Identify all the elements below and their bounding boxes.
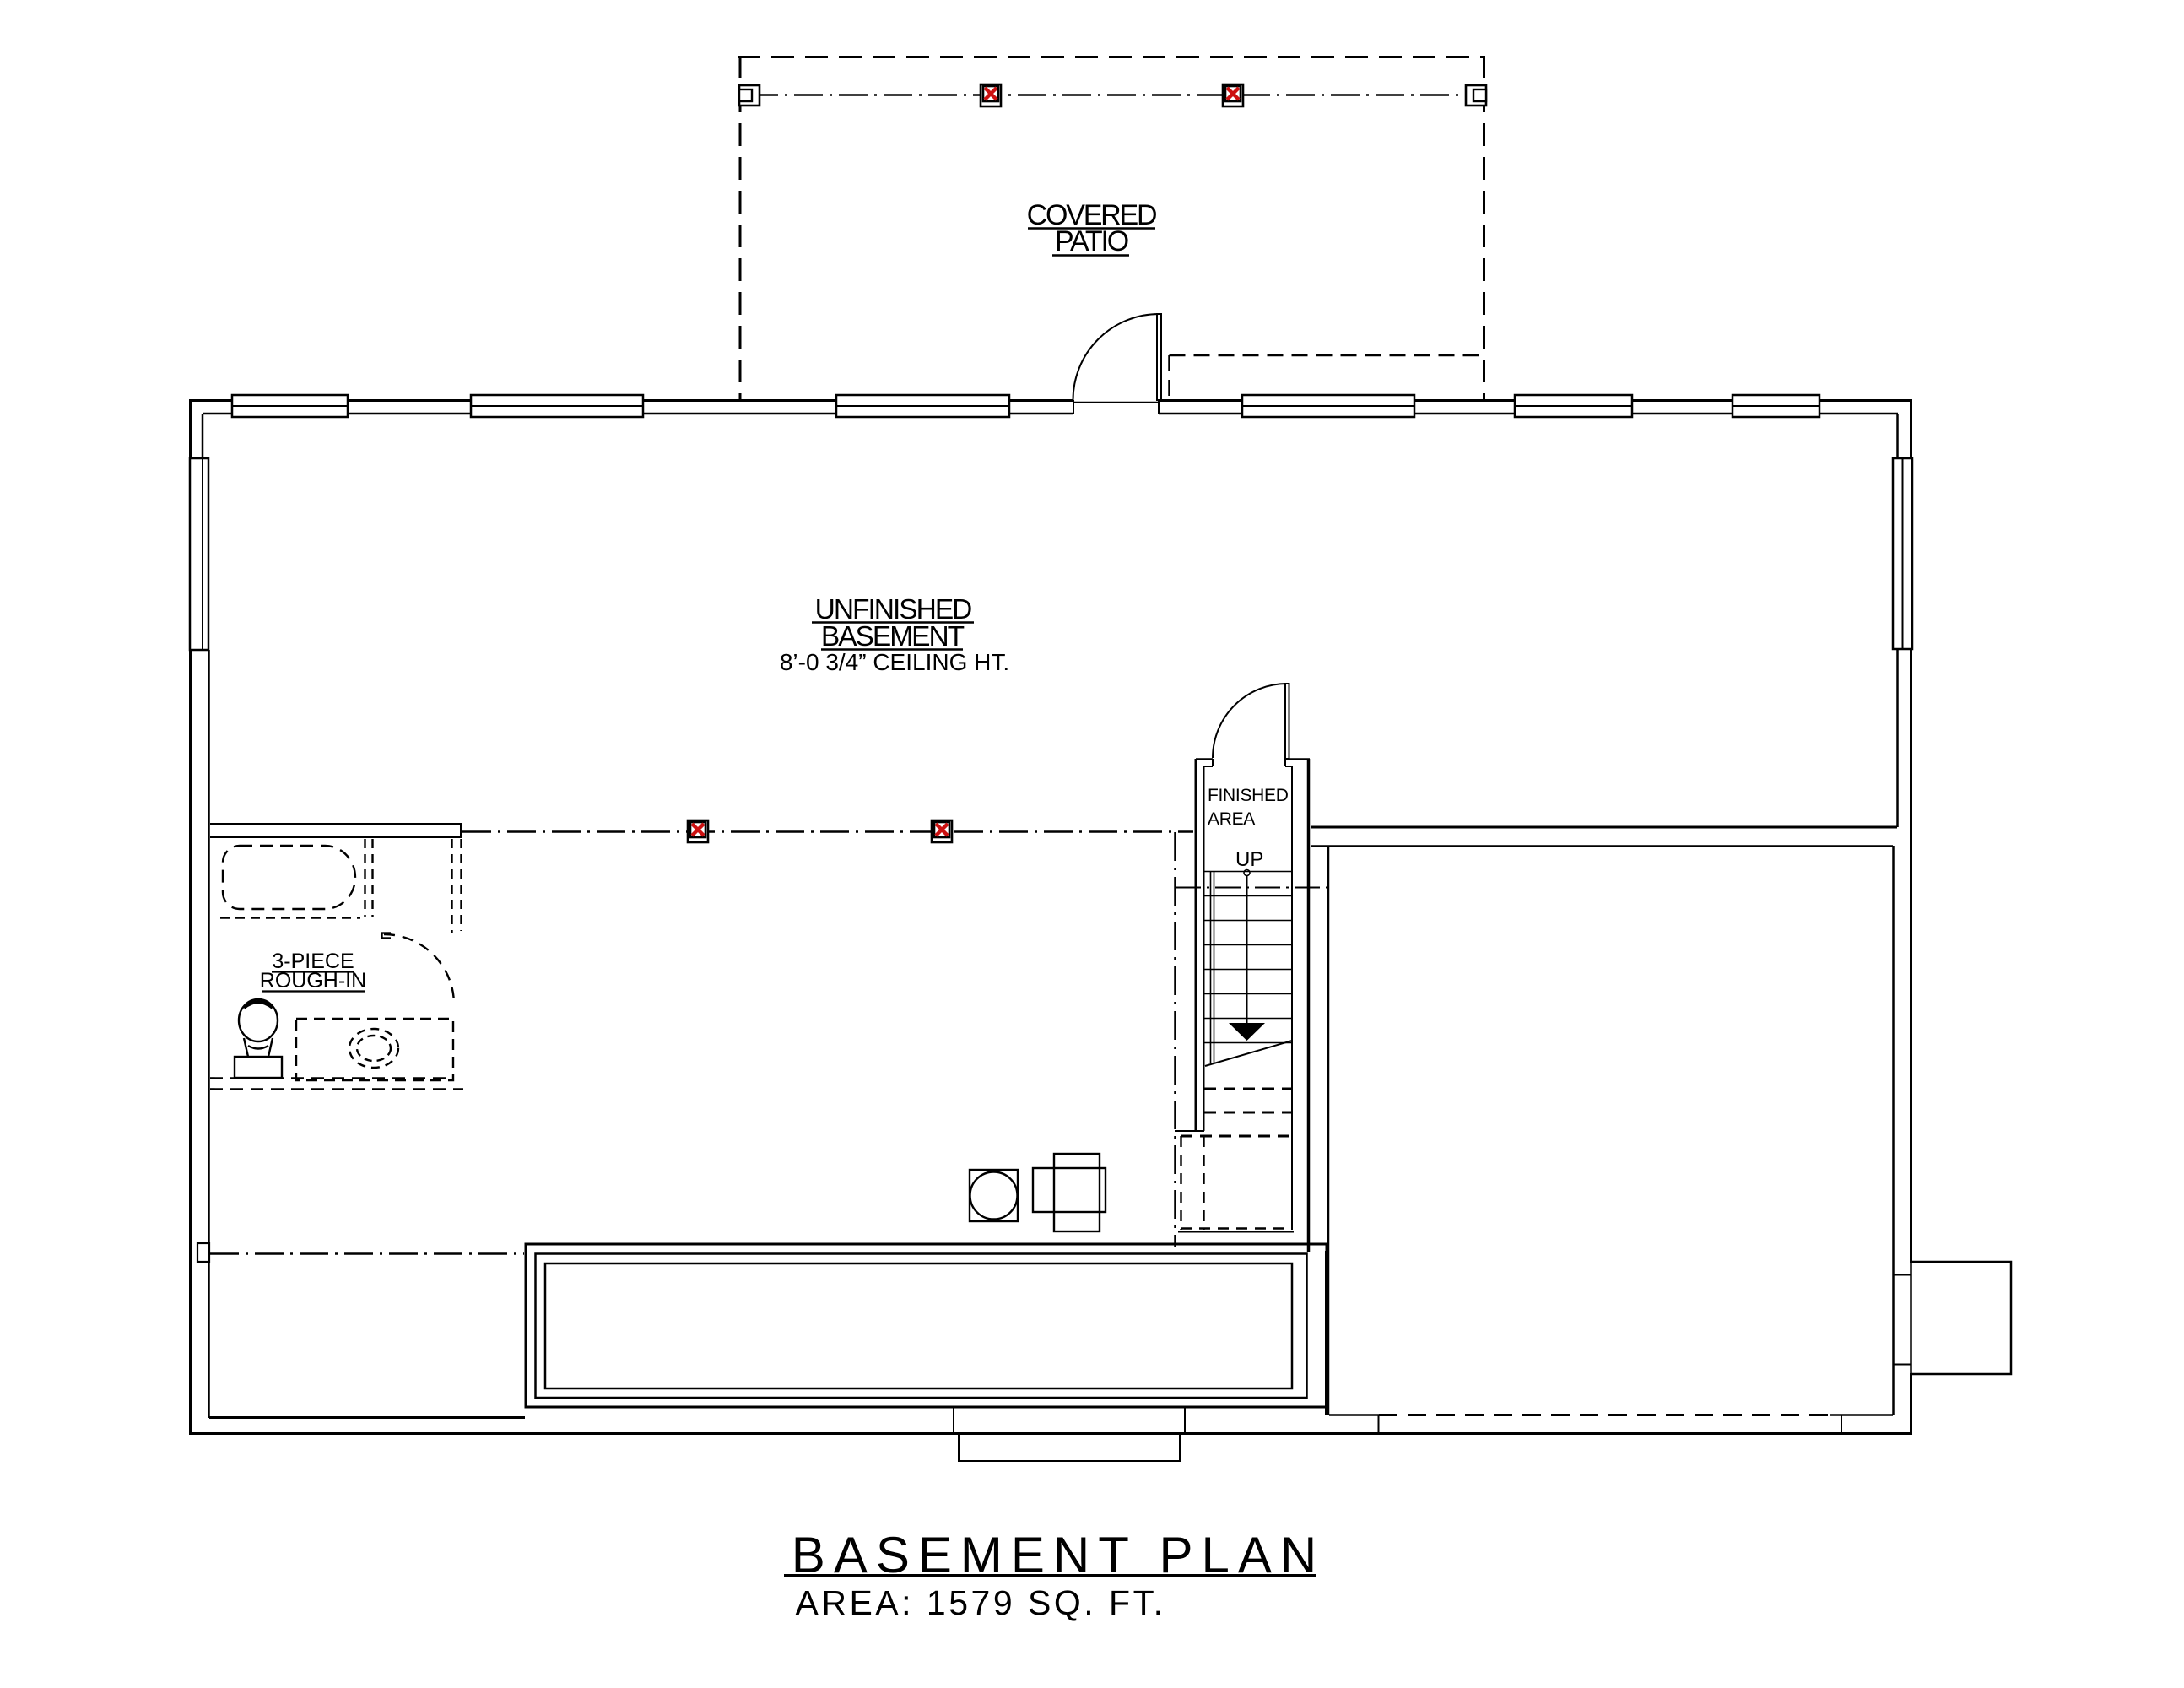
svg-text:ROUGH-IN: ROUGH-IN	[260, 969, 366, 993]
svg-text:AREA: AREA	[1208, 809, 1255, 829]
svg-text:8’-0 3/4” CEILING HT.: 8’-0 3/4” CEILING HT.	[780, 649, 1009, 675]
svg-text:AREA: 1579 SQ. FT.: AREA: 1579 SQ. FT.	[796, 1583, 1166, 1622]
svg-text:FINISHED: FINISHED	[1208, 786, 1289, 805]
svg-text:BASEMENT: BASEMENT	[821, 621, 965, 652]
svg-text:PATIO: PATIO	[1055, 225, 1128, 257]
svg-text:UP: UP	[1235, 848, 1263, 871]
